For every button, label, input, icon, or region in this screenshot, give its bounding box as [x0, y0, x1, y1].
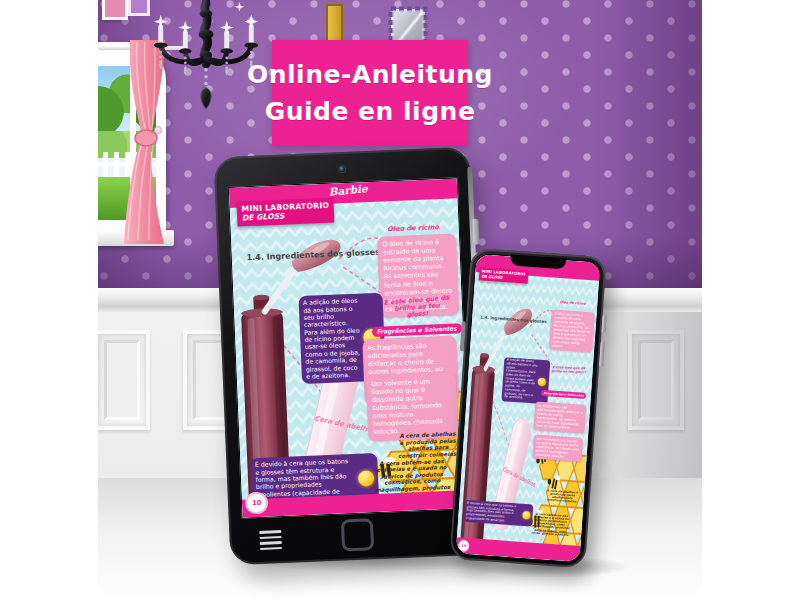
phone-side-button[interactable]	[460, 321, 466, 351]
honey-note-2: A cera obtém-se das colmeias e é usada n…	[529, 512, 573, 537]
online-guide-banner: Online-Anleitung Guide en ligne	[272, 40, 468, 145]
chandelier	[142, 0, 270, 116]
tip-box-wax-text: É devido à cera que os batons e glosses …	[466, 502, 522, 524]
lightbulb-icon	[358, 470, 375, 487]
banner-line-german: Online-Anleitung	[247, 60, 493, 89]
front-camera-icon	[338, 165, 346, 173]
tip-box-oils-text: A adição de óleos dá aos batons o seu br…	[504, 359, 538, 402]
manual-page: Cera de abelhas	[456, 254, 601, 562]
shine-note: É este óleo que dá brilho ao teu gloss!	[550, 365, 586, 374]
wainscot-panel	[98, 330, 150, 430]
honey-note-1: A cera de abelhas é produzida pelas abel…	[397, 431, 460, 459]
wall-frame	[102, 0, 128, 20]
menu-icon[interactable]	[259, 530, 282, 550]
shine-note: É este óleo que dá brilho ao teu gloss!	[384, 293, 452, 319]
barbie-logo: Barbie	[328, 182, 368, 198]
wainscot-panel	[628, 330, 684, 430]
phone-device: Cera de abelhas	[449, 248, 606, 569]
solvent-box: Um solvente é um líquido no qual é disso…	[533, 434, 583, 462]
fragrances-box: As fragrâncias são adicionadas para disf…	[533, 401, 586, 433]
page-title-box: MINI LABORATÓRIO DE GLOSS	[236, 197, 335, 226]
tip-box-oils: A adição de óleos dá aos batons o seu br…	[502, 357, 550, 404]
castor-oil-box: O óleo de rícino é extraído de uma semen…	[549, 309, 594, 352]
banner-line-french: Guide en ligne	[265, 97, 476, 126]
honey-note-1: A cera de abelhas é produzida pelas abel…	[545, 489, 579, 504]
phone-screen: Cera de abelhas	[455, 253, 602, 563]
product-image-canvas: Online-Anleitung Guide en ligne	[0, 0, 800, 600]
home-button[interactable]	[341, 518, 374, 551]
manual-page: Cera de abelhas	[229, 178, 471, 517]
tablet-device: Cera de abelhas	[214, 147, 487, 565]
tablet-screen: Cera de abelhas	[228, 177, 472, 518]
room-scene: Online-Anleitung Guide en ligne	[98, 0, 702, 600]
tip-box-oils-text: A adição de óleos dá aos batons o seu br…	[303, 297, 362, 380]
tablet-volume-button[interactable]	[472, 219, 479, 245]
wall-frame	[128, 0, 150, 16]
lightbulb-icon	[538, 377, 547, 386]
